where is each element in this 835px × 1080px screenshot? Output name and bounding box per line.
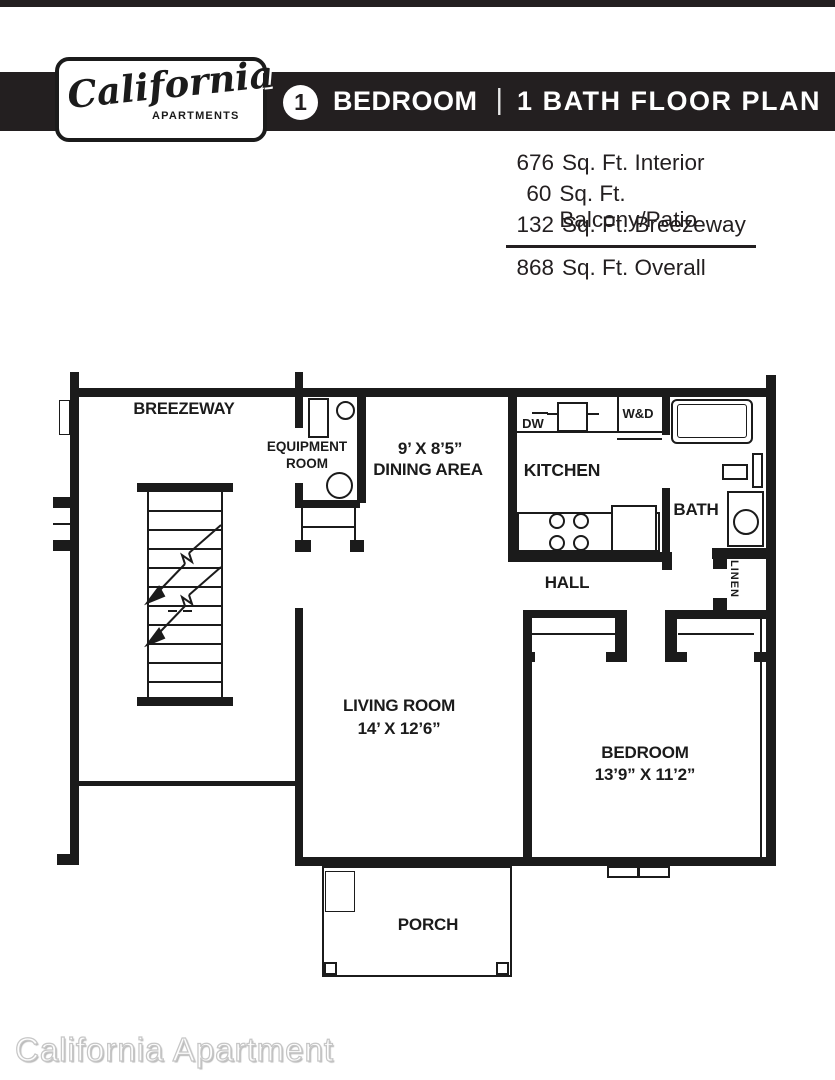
equipment-tank-small [336,401,355,420]
watermark-text: California Apartment [15,1031,334,1069]
door-jamb [615,610,627,654]
door-jamb [295,540,311,552]
wall-breezeway-bottom [70,781,299,786]
stove-burner [549,535,565,551]
label-breezeway: BREEZEWAY [133,400,234,419]
window-jamb [53,540,70,551]
washer-dryer-divider [617,397,619,433]
wall-bath-left-lower [662,488,670,562]
window-line [53,523,70,525]
wall-segment [57,854,70,865]
kitchen-sink [557,402,588,432]
bath-sink [722,464,748,480]
equipment-unit [308,398,329,438]
door-jamb [665,610,677,654]
sink-tick [588,413,599,415]
label-dishwasher: DW [522,416,544,431]
stat-value: 60 [506,181,551,207]
label-bedroom: BEDROOM [601,743,688,763]
window-jamb [53,497,70,508]
area-statistics: 676 Sq. Ft. Interior 60 Sq. Ft. Balcony/… [506,150,758,286]
porch-step [325,871,355,912]
banner-plan-label: 1 BATH FLOOR PLAN [517,86,821,117]
stat-overall: 868 Sq. Ft. Overall [506,255,758,286]
wall-bedroom-left [523,610,532,857]
bedroom-wall-inner-line [760,618,762,857]
stat-value: 676 [506,150,554,176]
stat-label: Sq. Ft. Overall [562,255,706,281]
bath-cabinet [752,453,763,488]
label-hall: HALL [545,573,590,593]
label-living-room: LIVING ROOM [343,696,455,716]
california-apartments-logo: California APARTMENTS [55,57,267,142]
wall-bath-left-upper [662,397,670,435]
stat-value: 132 [506,212,554,238]
banner-separator: | [496,84,504,117]
top-black-bar [0,0,835,7]
breezeway-ledge [59,400,70,435]
toilet [733,509,759,535]
label-bedroom-dims: 13’9” X 11’2” [595,765,695,785]
label-dining-dims: 9’ X 8’5” [398,439,462,459]
wall-left-exterior [70,388,79,865]
stat-label: Sq. Ft. Interior [562,150,705,176]
banner-unit-label: BEDROOM [333,86,478,117]
label-living-dims: 14’ X 12’6” [358,719,441,739]
wall-equipment-bottom [295,500,360,508]
wall-bottom-exterior [295,857,776,866]
wall-living-left [295,608,303,866]
label-equipment-room: EQUIPMENT [267,439,347,454]
stat-interior: 676 Sq. Ft. Interior [506,150,758,181]
dishwasher-mark [532,412,548,414]
label-linen: LINEN [728,560,740,598]
stats-divider-line [506,245,756,248]
door-header-line [678,633,754,635]
stat-breezeway: 132 Sq. Ft. Breezeway [506,212,758,243]
stat-label: Sq. Ft. Breezeway [562,212,746,238]
wall-segment [295,372,303,388]
stove-burner [573,513,589,529]
washer-dryer-line [617,438,662,440]
wall-linen-top [712,548,776,559]
door-jamb [350,540,364,552]
sink-tick [547,413,557,415]
door-jamb [713,598,727,610]
label-equipment-room: ROOM [286,456,328,471]
stair-direction-arrows [137,483,233,706]
wall-top-exterior [70,388,776,397]
label-porch: PORCH [398,915,458,935]
bathtub-inner [677,404,747,438]
closet-shelf-line [301,526,356,528]
logo-subtitle: APARTMENTS [152,110,240,122]
porch-post [496,962,509,975]
door-jamb [606,652,627,662]
door-jamb [713,559,727,569]
label-washer-dryer: W&D [622,406,653,421]
kitchen-range [611,505,657,552]
stove-burner [573,535,589,551]
stat-balcony: 60 Sq. Ft. Balcony/Patio [506,181,758,212]
stove-burner [549,513,565,529]
wall-equipment-left-upper [295,388,303,428]
door-header-line [530,633,615,635]
porch-post [324,962,337,975]
label-dining-area: DINING AREA [373,460,483,480]
bedroom-window [607,866,639,878]
wall-bedroom-top-left [523,610,627,618]
wall-right-exterior [766,375,776,866]
wall-segment [70,372,79,388]
water-heater [326,472,353,499]
counter-edge-line [517,431,664,433]
wall-dining-left [357,397,366,503]
door-jamb [662,562,672,570]
bedroom-window [638,866,670,878]
banner-title: BEDROOM | 1 BATH FLOOR PLAN [333,72,821,131]
label-kitchen: KITCHEN [524,460,600,481]
door-jamb [665,652,687,662]
logo-brand-script: California [65,53,265,117]
unit-number-badge: 1 [283,85,318,120]
wall-kitchen-bottom [508,552,672,562]
label-bath: BATH [673,500,718,520]
floor-plan-flyer: California APARTMENTS 1 BEDROOM | 1 BATH… [0,0,835,1080]
wall-kitchen-left [508,392,517,562]
stat-value: 868 [506,255,554,281]
